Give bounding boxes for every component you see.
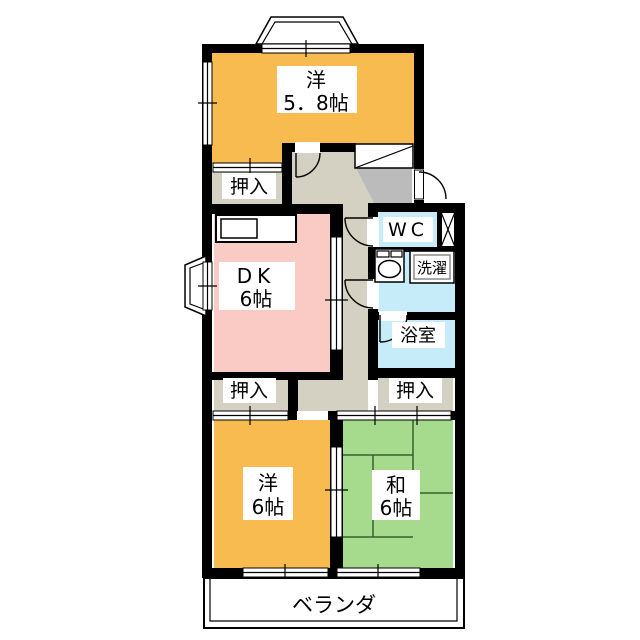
- label-closet-top: 押入: [222, 173, 276, 199]
- svg-text:WC: WC: [388, 219, 428, 241]
- label-japanese-6: 和 6帖: [372, 470, 420, 520]
- bay-window-top: [256, 17, 358, 57]
- label-western-6: 洋 6帖: [243, 467, 293, 520]
- shoe-cabinet: [355, 144, 413, 168]
- label-closet-right: 押入: [389, 378, 442, 403]
- svg-text:6帖: 6帖: [380, 496, 413, 520]
- svg-text:6帖: 6帖: [240, 287, 273, 311]
- svg-text:押入: 押入: [230, 176, 268, 198]
- laundry-label: 洗濯: [417, 259, 447, 277]
- kitchen-counter: [216, 215, 296, 242]
- floorplan-page: 洗濯 ベランダ 洋 5．8帖 押入 DK 6帖 WC 浴室 押入 押入 洋 6帖: [0, 0, 640, 640]
- svg-text:洋: 洋: [258, 471, 278, 495]
- label-closet-left: 押入: [223, 378, 276, 403]
- floorplan-svg: 洗濯 ベランダ 洋 5．8帖 押入 DK 6帖 WC 浴室 押入 押入 洋 6帖: [0, 0, 640, 640]
- svg-text:洋: 洋: [306, 68, 326, 92]
- svg-text:6帖: 6帖: [252, 495, 285, 519]
- svg-text:浴室: 浴室: [400, 326, 436, 347]
- washbasin: [375, 249, 404, 282]
- svg-text:押入: 押入: [230, 380, 268, 402]
- balcony-label: ベランダ: [292, 593, 376, 617]
- label-bath: 浴室: [392, 322, 445, 348]
- label-western-5-8: 洋 5．8帖: [277, 66, 357, 115]
- svg-text:押入: 押入: [396, 380, 434, 402]
- label-wc: WC: [383, 217, 433, 242]
- doorway-western6: [297, 411, 328, 420]
- svg-text:和: 和: [386, 473, 406, 497]
- svg-text:5．8帖: 5．8帖: [283, 91, 348, 115]
- bay-window-left: [185, 256, 217, 316]
- svg-text:DK: DK: [237, 264, 276, 288]
- label-dk: DK 6帖: [219, 262, 295, 311]
- pipe-shaft: [441, 212, 455, 247]
- balcony: ベランダ: [204, 578, 464, 628]
- washing-machine-space: 洗濯: [410, 251, 454, 283]
